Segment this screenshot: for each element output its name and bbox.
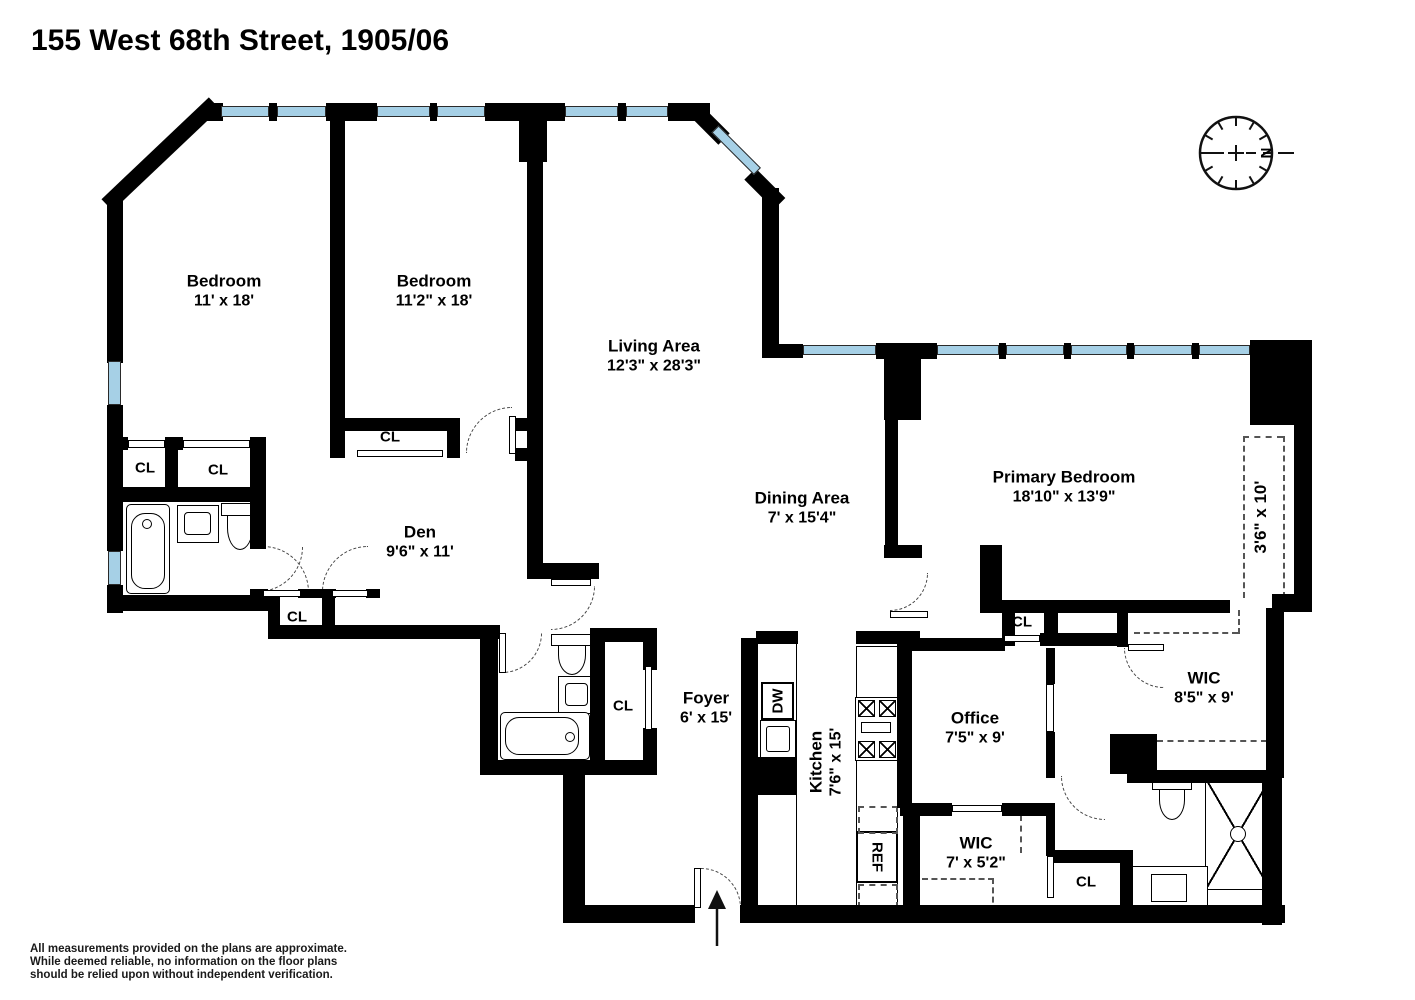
closet-label: CL bbox=[1076, 874, 1096, 891]
door-leaf bbox=[263, 590, 301, 597]
dashed-line bbox=[1243, 436, 1245, 598]
wall-segment bbox=[1250, 340, 1312, 425]
wall-segment bbox=[107, 595, 269, 611]
closet-label: CL bbox=[613, 698, 633, 715]
door-swing-arc bbox=[502, 633, 542, 673]
wall-segment bbox=[1117, 600, 1128, 647]
floor-plan: 155 West 68th Street, 1905/06 N Bedroom … bbox=[0, 0, 1415, 1000]
window-icon bbox=[1006, 345, 1064, 355]
wall-segment bbox=[618, 103, 626, 121]
sliding-door bbox=[645, 666, 652, 730]
door-leaf bbox=[499, 633, 506, 673]
burner-icon bbox=[879, 700, 896, 717]
wall-segment bbox=[480, 628, 498, 774]
wall-segment bbox=[1192, 343, 1199, 359]
room-label-wic-small: WIC 7' x 5'2" bbox=[946, 834, 1006, 873]
wall-segment bbox=[907, 638, 1005, 651]
window-icon bbox=[626, 106, 668, 117]
disclaimer: All measurements provided on the plans a… bbox=[30, 943, 347, 982]
door-swing-arc bbox=[1124, 648, 1164, 688]
closet-label: CL bbox=[1012, 614, 1032, 631]
door-leaf bbox=[1046, 684, 1054, 732]
wall-segment bbox=[101, 97, 219, 210]
bathtub-icon bbox=[126, 504, 170, 594]
room-label-den: Den 9'6" x 11' bbox=[386, 523, 454, 562]
wall-segment bbox=[1046, 732, 1055, 778]
sink-basin bbox=[565, 683, 588, 706]
sliding-door bbox=[1047, 856, 1054, 898]
burner-icon bbox=[879, 741, 896, 758]
wall-segment bbox=[1266, 608, 1284, 778]
dashed-line bbox=[1020, 815, 1022, 853]
dashed-cabinet bbox=[858, 806, 898, 834]
wall-segment bbox=[1051, 850, 1129, 863]
window-icon bbox=[108, 551, 121, 585]
stove-center bbox=[861, 722, 891, 733]
closet-label: CL bbox=[287, 609, 307, 626]
shower-drain bbox=[1230, 826, 1246, 842]
dashed-line bbox=[1157, 740, 1267, 742]
sliding-door bbox=[1004, 635, 1040, 642]
room-label-bedroom2: Bedroom 11'2" x 18' bbox=[396, 272, 473, 311]
wall-segment bbox=[762, 188, 779, 358]
burner-icon bbox=[858, 700, 875, 717]
bathtub-drain bbox=[142, 519, 152, 529]
wall-segment bbox=[563, 774, 585, 910]
room-label-office: Office 7'5" x 9' bbox=[945, 709, 1005, 748]
wall-segment bbox=[884, 545, 922, 558]
wall-segment bbox=[779, 344, 803, 358]
burner-icon bbox=[858, 741, 875, 758]
wall-segment bbox=[527, 431, 543, 577]
wall-segment bbox=[1046, 806, 1055, 856]
page-title: 155 West 68th Street, 1905/06 bbox=[31, 24, 449, 58]
sink-basin bbox=[1151, 874, 1187, 902]
door-leaf bbox=[952, 805, 1002, 812]
door-swing-arc bbox=[890, 573, 928, 611]
door-leaf bbox=[1128, 644, 1164, 651]
stove-icon bbox=[855, 697, 899, 761]
door-swing-arc bbox=[466, 407, 512, 453]
window-icon bbox=[711, 125, 760, 174]
wall-segment bbox=[330, 418, 345, 458]
window-icon bbox=[937, 345, 999, 355]
room-label-wic-large: WIC 8'5" x 9' bbox=[1174, 669, 1234, 708]
wall-segment bbox=[480, 760, 657, 775]
wall-segment bbox=[512, 418, 543, 431]
sink-icon bbox=[177, 505, 219, 543]
wall-segment bbox=[333, 625, 500, 639]
wall-segment bbox=[1127, 770, 1270, 783]
dishwasher-label: DW bbox=[770, 689, 787, 714]
wall-segment bbox=[268, 625, 335, 639]
wall-segment bbox=[1040, 633, 1117, 646]
closet-label: CL bbox=[380, 429, 400, 446]
closet-label: CL bbox=[135, 460, 155, 477]
window-icon bbox=[803, 345, 876, 355]
window-icon bbox=[1199, 345, 1250, 355]
wall-segment bbox=[527, 116, 543, 418]
compass-icon: N bbox=[1192, 112, 1296, 196]
wall-segment bbox=[980, 545, 1002, 612]
door-leaf bbox=[332, 590, 368, 597]
room-label-primary-bedroom: Primary Bedroom 18'10" x 13'9" bbox=[993, 468, 1136, 507]
wall-segment bbox=[756, 631, 798, 644]
door-leaf bbox=[509, 416, 516, 454]
window-icon bbox=[1134, 345, 1192, 355]
window-icon bbox=[277, 106, 326, 117]
door-swing-arc bbox=[551, 586, 595, 630]
wall-segment bbox=[107, 487, 266, 502]
wall-segment bbox=[590, 628, 605, 774]
room-label-kitchen: Kitchen 7'6" x 15' bbox=[807, 728, 846, 797]
window-icon bbox=[565, 106, 618, 117]
dashed-line bbox=[1134, 632, 1238, 634]
refrigerator-label: REF bbox=[869, 842, 886, 872]
window-icon bbox=[377, 106, 430, 117]
wall-segment bbox=[885, 418, 898, 546]
wall-segment bbox=[1046, 648, 1055, 684]
sliding-door bbox=[183, 440, 250, 448]
window-icon bbox=[108, 361, 121, 405]
wall-segment bbox=[447, 418, 460, 458]
dashed-line bbox=[1238, 610, 1240, 634]
room-label-bedroom1: Bedroom 11' x 18' bbox=[187, 272, 262, 311]
sliding-door bbox=[128, 440, 165, 448]
room-label-foyer: Foyer 6' x 15' bbox=[680, 689, 732, 728]
wall-segment bbox=[999, 343, 1006, 359]
wall-segment bbox=[643, 628, 657, 670]
window-icon bbox=[437, 106, 485, 117]
wall-segment bbox=[740, 905, 1285, 923]
vanity-counter bbox=[1128, 866, 1208, 910]
wall-segment bbox=[527, 563, 599, 579]
toilet-icon bbox=[551, 634, 593, 676]
kitchen-sink-icon bbox=[760, 720, 796, 758]
wall-segment bbox=[1294, 422, 1312, 602]
compass-north-label: N bbox=[1257, 148, 1274, 159]
toilet-icon bbox=[1152, 778, 1192, 821]
room-label-dining: Dining Area 7' x 15'4" bbox=[755, 489, 850, 528]
wall-segment bbox=[1127, 343, 1134, 359]
wall-segment bbox=[755, 757, 797, 795]
wall-segment bbox=[269, 103, 277, 121]
window-icon bbox=[1071, 345, 1127, 355]
wall-segment bbox=[250, 437, 266, 549]
wall-segment bbox=[643, 728, 657, 774]
door-swing-arc bbox=[322, 546, 368, 592]
wall-segment bbox=[1064, 343, 1071, 359]
wall-segment bbox=[107, 437, 128, 450]
wall-segment bbox=[1262, 775, 1282, 925]
wall-segment bbox=[897, 636, 912, 808]
door-leaf bbox=[551, 579, 591, 586]
dashed-line bbox=[1243, 436, 1283, 438]
wall-segment bbox=[366, 589, 380, 598]
wall-segment bbox=[107, 405, 123, 551]
wall-segment bbox=[430, 103, 437, 121]
wall-segment bbox=[1120, 850, 1133, 910]
room-label-living: Living Area 12'3" x 28'3" bbox=[607, 337, 701, 376]
bathtub-drain bbox=[565, 732, 575, 742]
wall-segment bbox=[900, 803, 952, 816]
wall-segment bbox=[165, 437, 178, 490]
room-label-hall-closet: 3'6" x 10' bbox=[1251, 481, 1271, 554]
door-swing-arc bbox=[1061, 776, 1105, 820]
wall-segment bbox=[903, 803, 920, 915]
door-leaf bbox=[890, 611, 928, 618]
wall-segment bbox=[330, 118, 345, 440]
entry-arrow-icon bbox=[700, 890, 736, 948]
sink-basin bbox=[766, 726, 790, 752]
wall-segment bbox=[107, 200, 123, 363]
sliding-door bbox=[357, 450, 443, 457]
sink-basin bbox=[184, 512, 211, 535]
wall-segment bbox=[884, 357, 921, 420]
wall-segment bbox=[1110, 734, 1157, 774]
closet-label: CL bbox=[208, 462, 228, 479]
wall-segment bbox=[980, 600, 1230, 613]
window-icon bbox=[221, 106, 269, 117]
bathtub-icon bbox=[500, 712, 590, 760]
dashed-line bbox=[1283, 436, 1285, 598]
